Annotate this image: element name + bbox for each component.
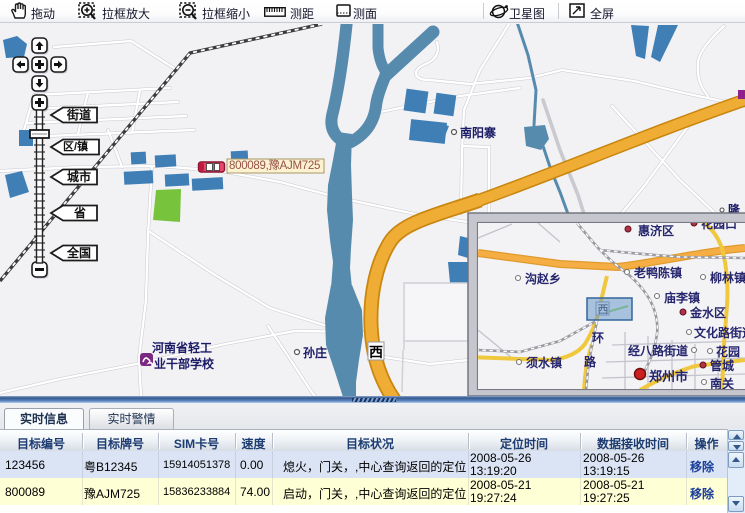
svg-text:文化路街道: 文化路街道 <box>694 325 745 340</box>
svg-text:街道: 街道 <box>66 107 91 122</box>
svg-text:南阳寨: 南阳寨 <box>460 125 496 140</box>
svg-text:区/镇: 区/镇 <box>63 139 88 153</box>
svg-text:须水镇: 须水镇 <box>526 355 562 370</box>
svg-text:河南省轻工: 河南省轻工 <box>151 340 212 355</box>
svg-text:经八路街道: 经八路街道 <box>628 343 688 358</box>
svg-text:庙李镇: 庙李镇 <box>664 290 700 305</box>
svg-text:业干部学校: 业干部学校 <box>154 356 215 371</box>
svg-text:管城: 管城 <box>710 358 734 373</box>
svg-text:西: 西 <box>369 344 383 360</box>
svg-text:沟赵乡: 沟赵乡 <box>525 271 561 286</box>
svg-text:花园: 花园 <box>716 344 740 359</box>
svg-text:柳林镇: 柳林镇 <box>710 270 745 285</box>
svg-text:800089,豫AJM725: 800089,豫AJM725 <box>229 159 320 172</box>
svg-text:郑州市: 郑州市 <box>649 369 688 384</box>
svg-text:全国: 全国 <box>66 245 91 260</box>
svg-text:孙庄: 孙庄 <box>303 345 327 360</box>
svg-text:省: 省 <box>73 205 86 220</box>
svg-text:南关: 南关 <box>710 376 734 391</box>
svg-text:老鸭陈镇: 老鸭陈镇 <box>634 265 682 280</box>
svg-text:路: 路 <box>584 354 597 369</box>
svg-text:城市: 城市 <box>67 169 91 184</box>
svg-text:惠济区: 惠济区 <box>638 223 674 238</box>
svg-text:环: 环 <box>592 331 604 345</box>
svg-text:金水区: 金水区 <box>689 305 726 320</box>
